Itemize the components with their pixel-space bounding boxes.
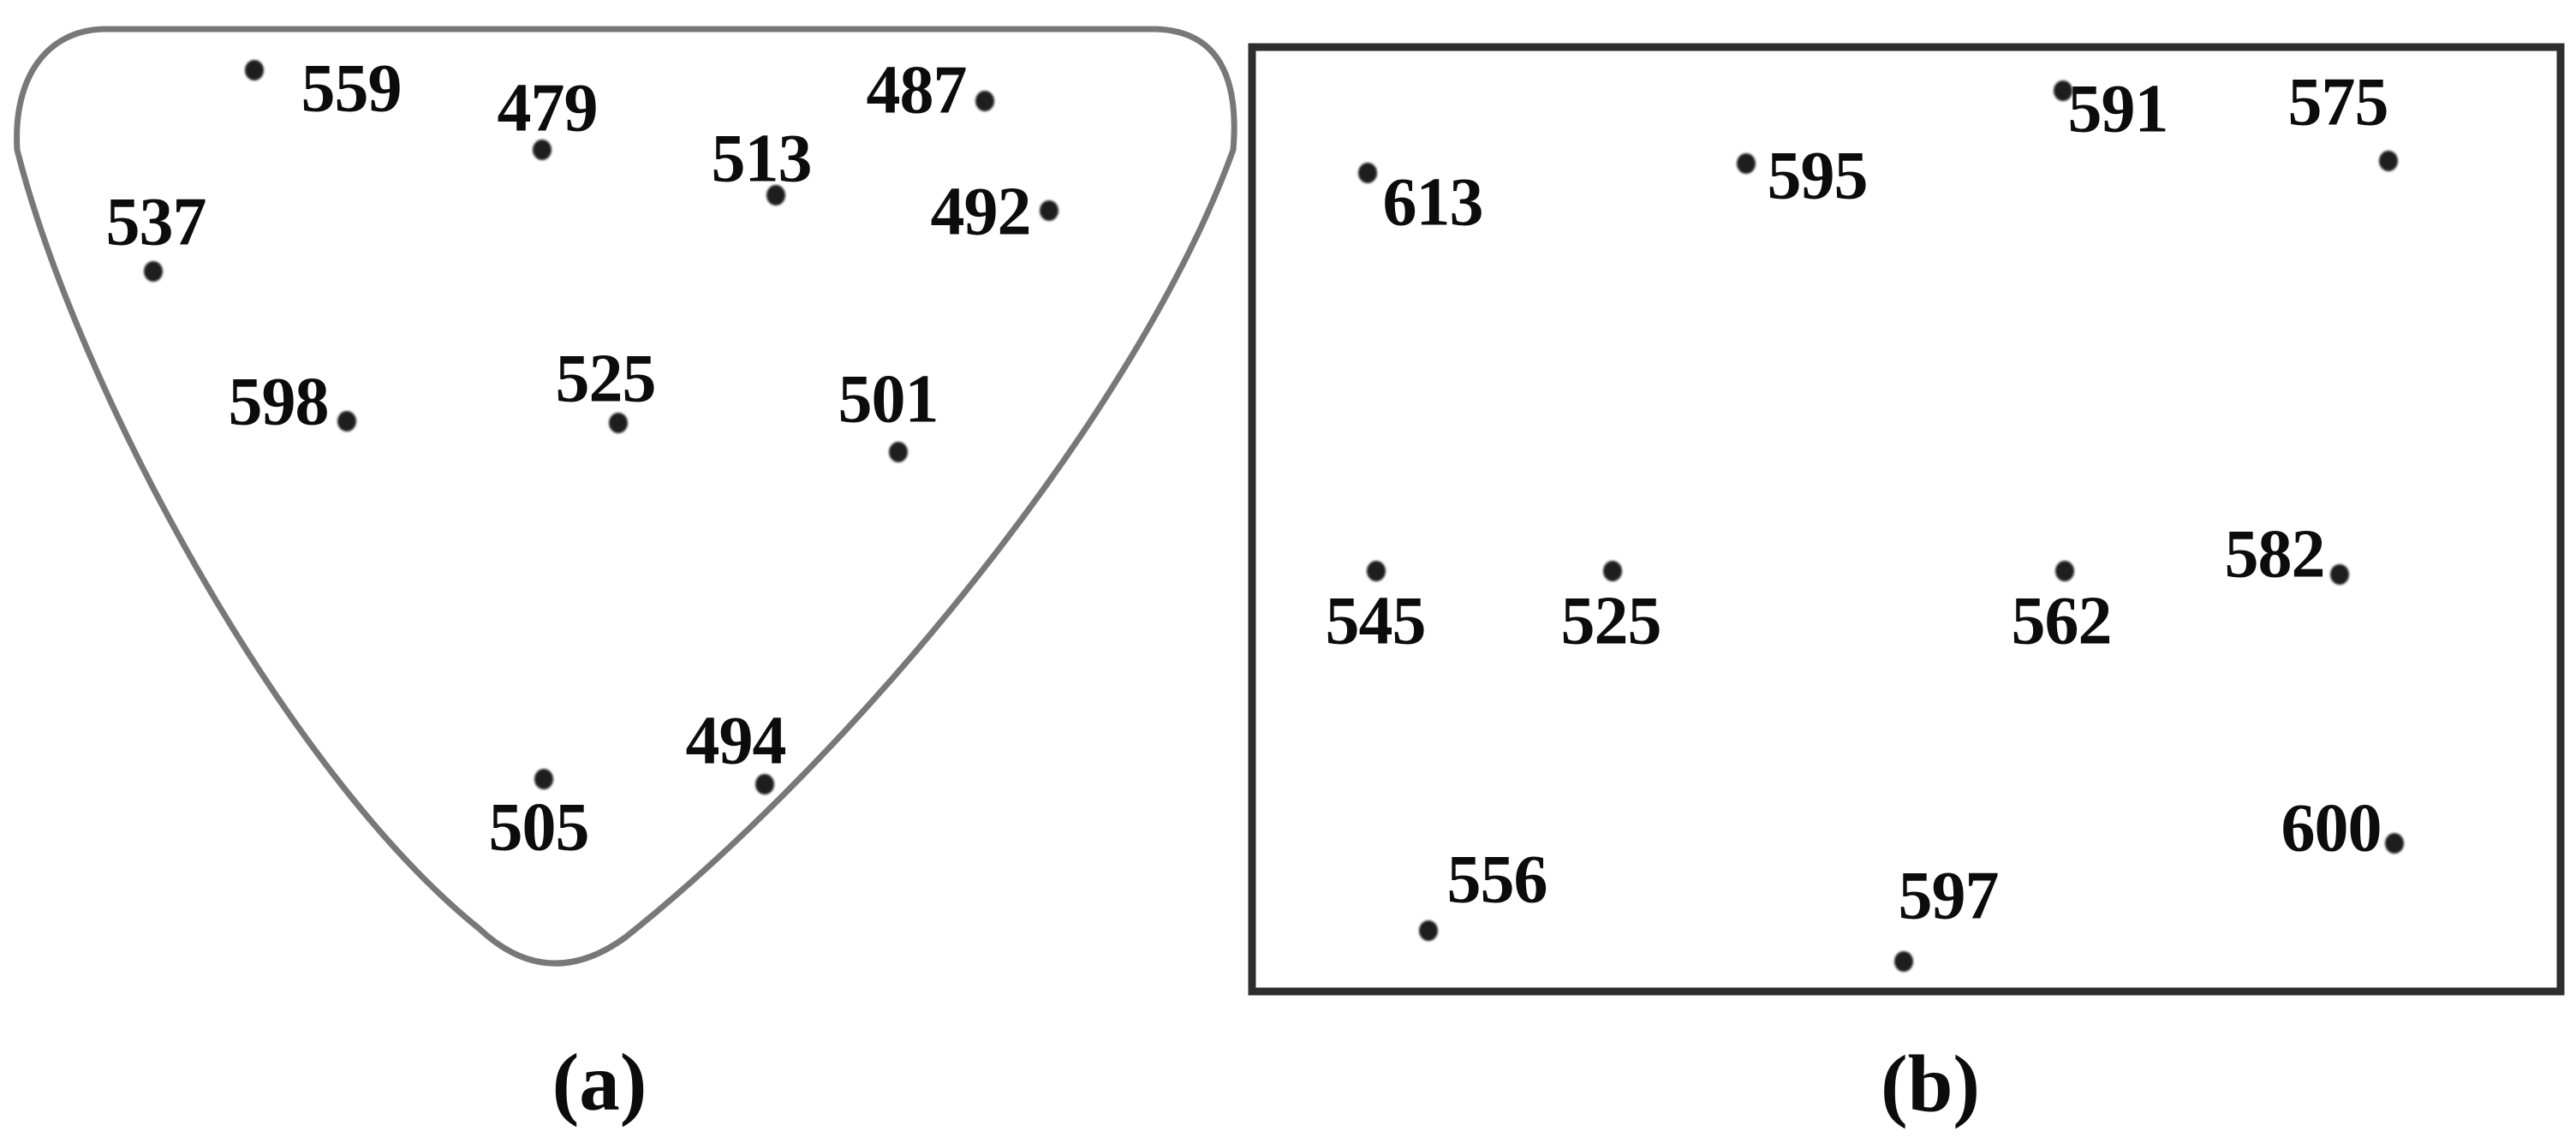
data-label-b-595: 595 [1768, 138, 1868, 216]
data-dot-b-575 [2379, 151, 2398, 171]
data-label-a-501: 501 [838, 361, 939, 439]
data-dot-a-492 [1040, 200, 1058, 221]
data-label-b-562: 562 [2012, 583, 2112, 661]
data-label-b-600: 600 [2281, 790, 2382, 868]
data-label-a-479: 479 [498, 70, 598, 148]
data-label-a-513: 513 [712, 121, 812, 199]
data-dot-b-562 [2055, 561, 2074, 581]
data-label-b-545: 545 [1326, 583, 1426, 661]
data-dot-b-600 [2385, 833, 2404, 854]
data-label-a-505: 505 [489, 789, 589, 867]
data-dot-a-537 [144, 261, 163, 282]
data-dot-b-613 [1358, 163, 1377, 183]
data-dot-a-598 [337, 411, 356, 432]
data-label-b-582: 582 [2225, 516, 2325, 594]
triangle-outline [17, 29, 1235, 963]
data-label-a-487: 487 [867, 52, 967, 130]
data-label-b-556: 556 [1447, 842, 1547, 920]
data-dot-a-559 [245, 60, 264, 80]
caption-panel-b: (b) [1881, 1037, 1980, 1131]
data-label-a-525: 525 [556, 341, 656, 419]
data-label-b-591: 591 [2068, 71, 2168, 149]
data-label-a-598: 598 [229, 364, 329, 442]
data-label-b-525: 525 [1561, 583, 1661, 661]
data-label-a-537: 537 [106, 184, 206, 262]
data-dot-a-505 [534, 769, 553, 789]
panel-outlines [0, 0, 2576, 1137]
data-dot-b-597 [1894, 951, 1913, 972]
figure-canvas: (a) (b) 55947951348749253759852550149450… [0, 0, 2576, 1137]
data-label-b-575: 575 [2288, 64, 2388, 142]
data-dot-b-595 [1737, 153, 1756, 174]
data-dot-a-501 [889, 442, 908, 462]
data-label-a-492: 492 [931, 174, 1031, 252]
data-label-a-559: 559 [301, 51, 402, 128]
data-dot-b-545 [1367, 561, 1386, 581]
data-label-a-494: 494 [686, 703, 786, 781]
data-dot-b-525 [1603, 561, 1622, 581]
caption-panel-a: (a) [552, 1035, 647, 1129]
data-dot-b-556 [1419, 920, 1438, 941]
data-label-b-613: 613 [1383, 164, 1483, 242]
data-dot-b-582 [2330, 564, 2349, 585]
data-label-b-597: 597 [1899, 858, 1999, 936]
data-dot-a-487 [975, 91, 994, 111]
